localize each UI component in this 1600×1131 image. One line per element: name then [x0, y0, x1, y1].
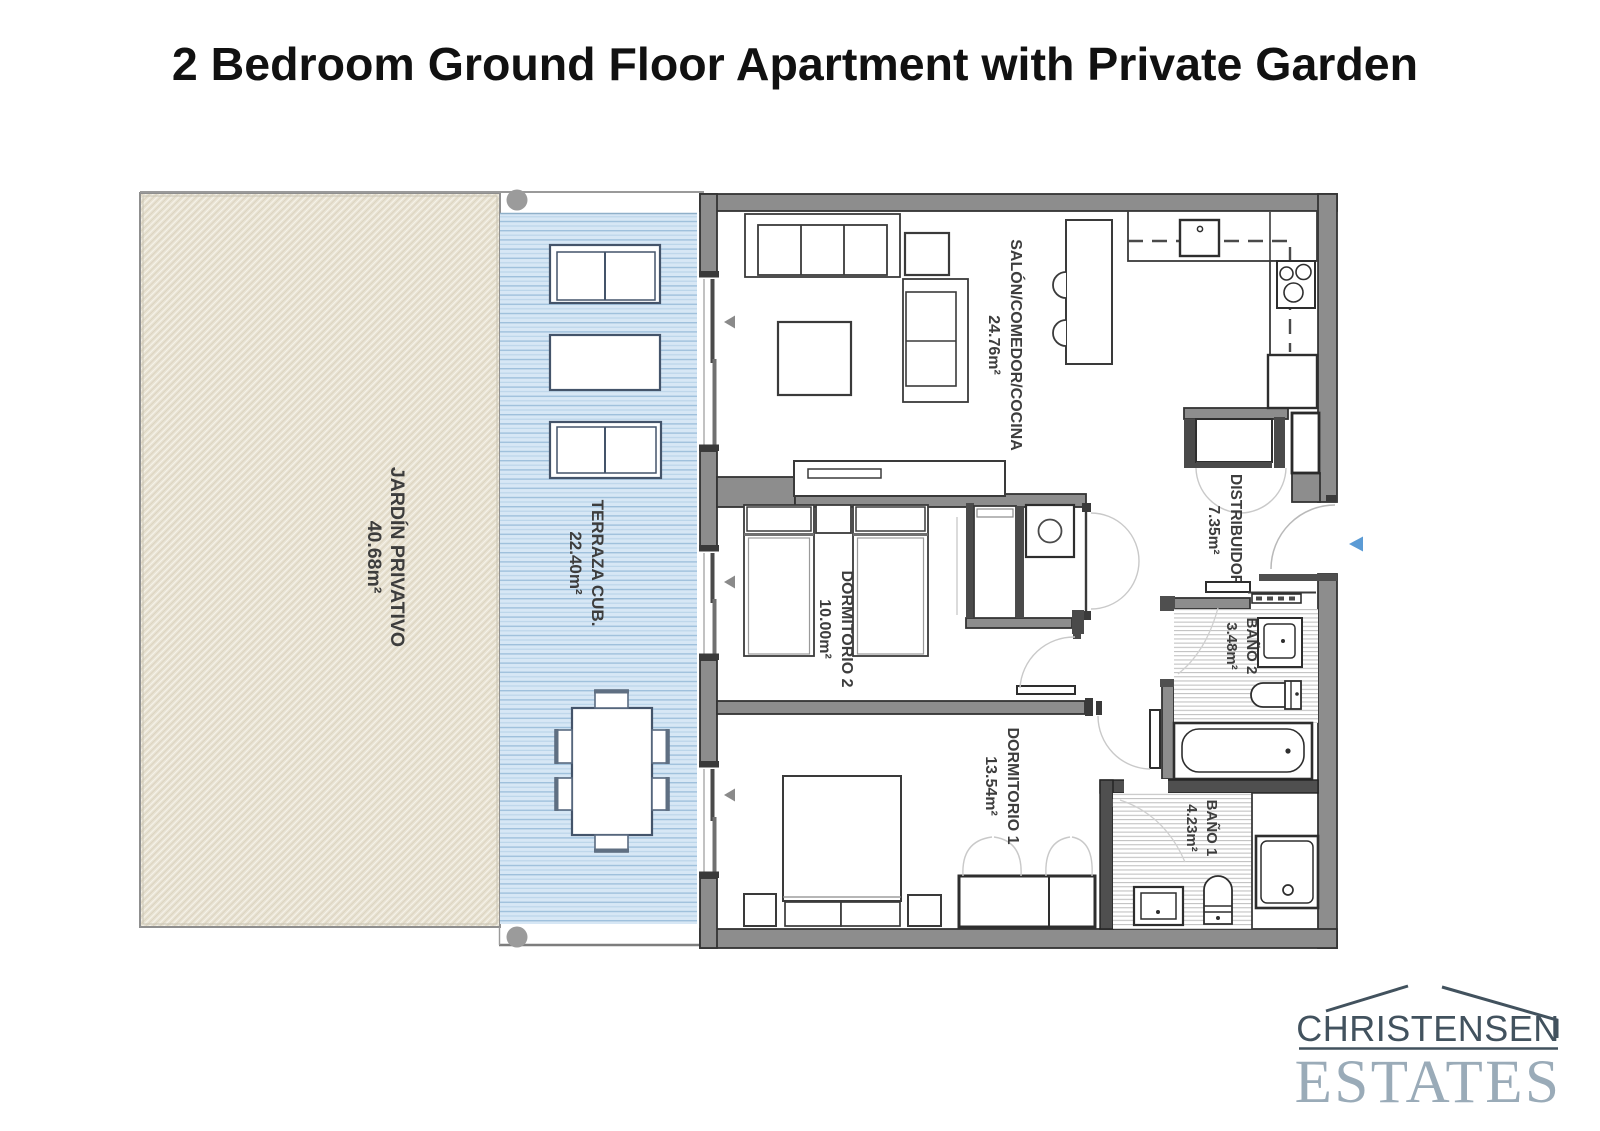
svg-text:TERRAZA CUB.: TERRAZA CUB.	[588, 500, 607, 627]
svg-text:SALÓN/COMEDOR/COCINA: SALÓN/COMEDOR/COCINA	[1007, 239, 1026, 451]
svg-text:BAÑO 2: BAÑO 2	[1243, 618, 1261, 675]
svg-text:4.23m²: 4.23m²	[1183, 804, 1200, 852]
svg-text:DISTRIBUIDOR: DISTRIBUIDOR	[1227, 474, 1244, 586]
svg-text:2 Bedroom Ground Floor Apartme: 2 Bedroom Ground Floor Apartment with Pr…	[172, 38, 1418, 90]
svg-text:CHRISTENSEN: CHRISTENSEN	[1296, 1008, 1560, 1049]
svg-text:ESTATES: ESTATES	[1295, 1049, 1562, 1116]
svg-text:13.54m²: 13.54m²	[982, 756, 999, 816]
svg-text:10.00m²: 10.00m²	[816, 599, 833, 659]
svg-text:40.68m²: 40.68m²	[363, 521, 385, 594]
svg-text:BAÑO 1: BAÑO 1	[1203, 800, 1221, 857]
svg-text:DORMITORIO 2: DORMITORIO 2	[838, 570, 855, 687]
svg-text:22.40m²: 22.40m²	[566, 531, 585, 595]
svg-text:JARDÍN PRIVATIVO: JARDÍN PRIVATIVO	[386, 467, 409, 647]
svg-text:24.76m²: 24.76m²	[985, 315, 1002, 375]
svg-text:3.48m²: 3.48m²	[1223, 622, 1240, 670]
svg-text:7.35m²: 7.35m²	[1205, 505, 1222, 554]
svg-text:DORMITORIO 1: DORMITORIO 1	[1004, 727, 1021, 844]
